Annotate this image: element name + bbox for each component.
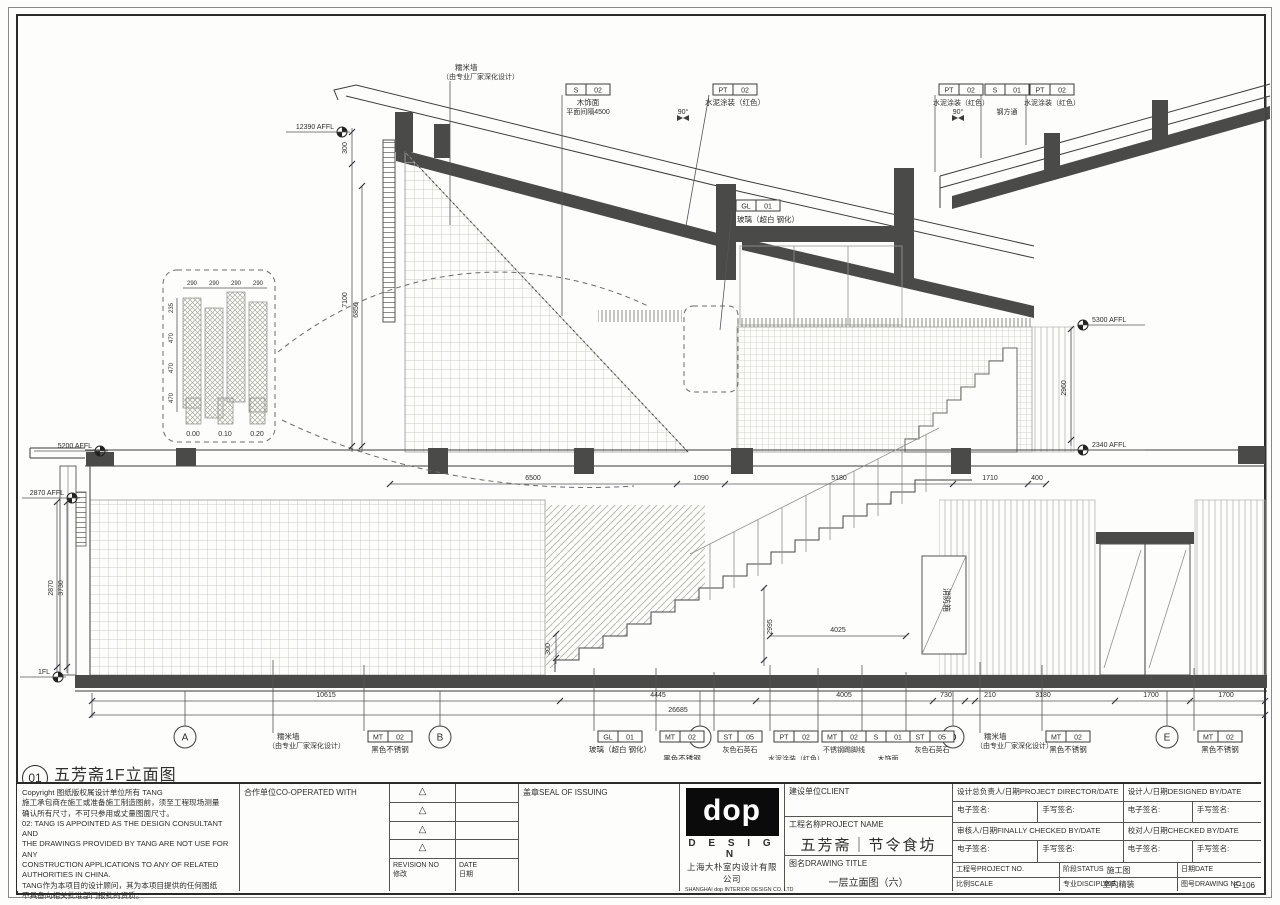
tag-code: PT: [945, 88, 955, 95]
checked-by-label: 校对人/日期CHECKED BY/DATE: [1124, 823, 1261, 841]
note-nuomi-wall-sub: （由专业厂家深化设计）: [268, 741, 345, 750]
dim-label: 2960: [1061, 380, 1068, 396]
tag-num: 02: [741, 88, 749, 95]
dim-label: 2995: [767, 619, 774, 635]
material-tag-pt02-d: PT 02 水泥涂装（红色）: [768, 731, 824, 760]
mid-dimension-chain: 6500 1090 5180 1710 400: [387, 475, 1049, 487]
co-operated-with-cell: 合作单位CO-OPERATED WITH: [240, 784, 390, 891]
tag-code: MT: [373, 735, 384, 742]
tag-code: ST: [724, 735, 734, 742]
dim-label: 4005: [836, 692, 852, 699]
tag-desc: 水泥涂装（红色）: [933, 98, 989, 107]
tag-num: 02: [1058, 88, 1066, 95]
client-cell: 建设单位CLIENT: [785, 784, 952, 817]
dim-label: 1700: [1218, 692, 1234, 699]
level-label: 5300 AFFL: [1092, 317, 1126, 324]
copyright-line: CONSTRUCTION APPLICATIONS TO ANY OF RELA…: [22, 860, 234, 870]
ground-line: [75, 675, 1267, 691]
tag-code: MT: [827, 735, 838, 742]
note-nuomi-wall-sub: （由专业厂家深化设计）: [442, 72, 519, 81]
project-no-cell: 工程号PROJECT NO.: [953, 863, 1059, 878]
note-nuomi-wall-sub: （由专业厂家深化设计）: [976, 741, 1053, 750]
drawing-title-value: 一层立面图（六）: [789, 874, 948, 889]
drawing-title-label: 图名DRAWING TITLE: [789, 859, 867, 868]
angle-label: 90°: [678, 108, 689, 116]
revision-date-cell: [456, 784, 518, 802]
tag-desc: 木饰面: [577, 97, 600, 107]
detail-dim: 290: [253, 281, 264, 287]
project-name-label: 工程名称PROJECT NAME: [789, 820, 884, 829]
tag-code: GL: [603, 735, 612, 742]
dim-label: 300: [545, 643, 552, 655]
revision-date-label-cn: 日期: [459, 870, 515, 879]
grid-bubble-label: A: [182, 733, 189, 744]
project-name-cell: 工程名称PROJECT NAME 五芳斋｜节令食坊: [785, 817, 952, 856]
material-tag-pt02-c: PT 02 水泥涂装（红色）: [1024, 84, 1080, 107]
copyright-line: THE DRAWINGS PROVIDED BY TANG ARE NOT US…: [22, 839, 234, 860]
seal-label: 盖章SEAL OF ISSUING: [523, 788, 608, 797]
detail-dim: 235: [169, 302, 175, 313]
design-wordmark: D E S I G N: [685, 838, 779, 860]
tag-desc: 玻璃（超白 钢化）: [589, 744, 651, 754]
note-nuomi-wall: 糯米墙: [277, 731, 300, 741]
hsign-label: 手写签名:: [1193, 841, 1261, 862]
dim-label: 3730: [58, 580, 65, 596]
company-name-cn: 上海大朴室内设计有限公司: [685, 861, 779, 885]
material-tag-st05: ST 05 灰色石英石: [718, 731, 762, 754]
level-label: 12390 AFFL: [296, 124, 334, 131]
angle-mark-90: 90°: [952, 108, 964, 121]
dim-label: 2870: [48, 580, 55, 596]
material-tag-gl01-b: GL 01 玻璃（超白 钢化）: [589, 731, 651, 754]
tag-num: 01: [764, 204, 772, 211]
fire-hydrant-cabinet: 消防箱: [922, 556, 966, 654]
copyright-line: TANG作为本项目的设计顾问，其为本项目提供的任何图纸: [22, 881, 234, 891]
material-tag-st05-b: ST 05 灰色石英石: [910, 731, 954, 754]
discipline-cell: 专业DISCIPLINE 室内精装: [1060, 878, 1177, 892]
detail-dim: 470: [169, 362, 175, 373]
entrance-door: [1096, 532, 1194, 675]
dim-label: 730: [940, 692, 952, 699]
level-label: 5200 AFFL: [58, 443, 92, 450]
dim-label: 1090: [693, 475, 709, 482]
elevation-drawing: 消防箱 290 290 290 2: [0, 0, 1280, 760]
seal-cell: 盖章SEAL OF ISSUING: [519, 784, 680, 891]
date-cell: 日期DATE: [1178, 863, 1261, 878]
detail-dim: 290: [209, 281, 220, 287]
grid-bubble-label: E: [1164, 733, 1171, 744]
hsign-label: 手写签名:: [1193, 802, 1261, 822]
tag-desc: 黑色不锈钢: [663, 753, 701, 760]
tag-num: 01: [894, 735, 902, 742]
tag-num: 02: [1226, 735, 1234, 742]
tag-num: 05: [938, 735, 946, 742]
tag-desc: 黑色不锈钢: [1201, 744, 1239, 754]
tag-num: 02: [850, 735, 858, 742]
material-tag-mt02: MT 02 黑色不锈钢: [368, 731, 412, 754]
note-nuomi-wall: 糯米墙: [984, 731, 1007, 741]
scale-cell: 比例SCALE: [953, 878, 1059, 892]
company-logo-cell: dop D E S I G N 上海大朴室内设计有限公司 SHANGHAI do…: [680, 784, 785, 891]
dim-total-label: 26685: [668, 707, 688, 714]
material-tag-pt02-b: PT 02 水泥涂装（红色）: [933, 84, 989, 107]
tag-code: MT: [1203, 735, 1214, 742]
dim-label: 1710: [982, 475, 998, 482]
esign-label: 电子签名:: [953, 841, 1038, 862]
company-name-en: SHANGHAI dop INTERIOR DESIGN CO. LTD: [685, 887, 779, 893]
revision-date-header: DATE 日期: [456, 859, 518, 891]
material-tag-s02: S 02 木饰面 平面间隔4500: [566, 84, 610, 116]
designer-signature-block: 设计人/日期DESIGNED BY/DATE 电子签名:手写签名: 校对人/日期…: [1124, 784, 1261, 862]
dim-label: 300: [342, 142, 349, 154]
material-tag-mt02-d: MT 02 黑色不锈钢: [1198, 731, 1242, 754]
tag-code: PT: [780, 735, 790, 742]
revision-date-cell: [456, 803, 518, 821]
dim-label: 4445: [650, 692, 666, 699]
discipline-value: 室内精装: [1060, 879, 1177, 890]
drawing-title-cell: 图名DRAWING TITLE 一层立面图（六）: [785, 856, 952, 891]
angle-mark-90: 90°: [677, 108, 689, 121]
tag-desc: 水泥涂装（红色）: [1024, 98, 1080, 107]
detail-dim: 470: [169, 332, 175, 343]
tag-desc: 黑色不锈钢: [1049, 744, 1087, 754]
revision-date-label: DATE: [459, 861, 515, 870]
revision-mark: △: [390, 840, 456, 858]
title-block: Copyright 图纸版权属设计单位所有 TANG 施工承包商在施工或准备施工…: [17, 782, 1261, 891]
designed-by-label: 设计人/日期DESIGNED BY/DATE: [1124, 784, 1261, 802]
tag-code: MT: [665, 735, 676, 742]
detail-legend: 0.00: [186, 431, 200, 438]
copyright-notes: Copyright 图纸版权属设计单位所有 TANG 施工承包商在施工或准备施工…: [17, 784, 240, 891]
copyright-line: 确认所有尺寸，不可只参用或丈量图面尺寸。: [22, 809, 234, 819]
tag-num: 05: [746, 735, 754, 742]
bottom-dimension-chain: 10615 4445 4005 730 210 3180 1700 1700 2…: [89, 692, 1268, 718]
tag-desc: 钢方通: [997, 107, 1018, 116]
tag-code: PT: [1036, 88, 1046, 95]
level-label: 1FL: [38, 669, 50, 676]
level-label: 2870 AFFL: [30, 490, 64, 497]
tag-desc: 玻璃（超白 钢化）: [737, 214, 799, 224]
drawing-no-cell: 图号DRAWING NO. E-106: [1178, 878, 1261, 892]
dim-label: 4025: [830, 627, 846, 634]
copyright-line: AUTHORITIES IN CHINA.: [22, 870, 234, 880]
angle-label: 90°: [953, 108, 964, 116]
project-name-value: 五芳斋｜节令食坊: [789, 834, 948, 855]
status-value: 施工图: [1060, 865, 1177, 876]
tag-desc: 不锈钢踢脚线: [823, 745, 865, 754]
copyright-line: 施工承包商在施工或准备施工制造图前，须至工程现场测量: [22, 798, 234, 808]
fire-cabinet-label: 消防箱: [942, 588, 952, 612]
tag-num: 02: [802, 735, 810, 742]
dim-label: 400: [1031, 475, 1043, 482]
revision-table: △ △ △ △ REVISION NO 修改 DATE 日期: [390, 784, 519, 891]
material-tag-s01-wood: S 01 木饰面: [866, 731, 910, 760]
tag-code: S: [574, 88, 579, 95]
revision-mark: △: [390, 803, 456, 821]
revision-date-cell: [456, 840, 518, 858]
tag-code: ST: [916, 735, 926, 742]
level-label: 2340 AFFL: [1092, 442, 1126, 449]
tag-desc: 灰色石英石: [915, 745, 950, 754]
tag-code: S: [993, 88, 998, 95]
note-nuomi-wall: 糯米墙: [455, 62, 478, 72]
revision-no-label-cn: 修改: [393, 870, 452, 879]
dim-label: 1700: [1143, 692, 1159, 699]
tag-num: 01: [1013, 88, 1021, 95]
copyright-line: 02: TANG IS APPOINTED AS THE DESIGN CONS…: [22, 819, 234, 840]
tag-code: PT: [719, 88, 729, 95]
tag-code: S: [874, 735, 879, 742]
tag-num: 02: [1074, 735, 1082, 742]
dim-label: 5180: [831, 475, 847, 482]
esign-label: 电子签名:: [1124, 841, 1193, 862]
dim-label: 6500: [525, 475, 541, 482]
project-no-label: 工程号PROJECT NO.: [956, 866, 1024, 873]
detail-dim: 290: [187, 281, 198, 287]
esign-label: 电子签名:: [953, 802, 1038, 822]
tag-num: 02: [688, 735, 696, 742]
dim-label: 210: [984, 692, 996, 699]
material-tag-mt02-c: MT 02 黑色不锈钢: [1046, 731, 1090, 754]
dim-label: 10615: [316, 692, 336, 699]
status-cell: 阶段STATUS 施工图: [1060, 863, 1177, 878]
dim-label: 3180: [1035, 692, 1051, 699]
detail-dim: 470: [169, 392, 175, 403]
detail-legend: 0.20: [250, 431, 264, 438]
tag-desc: 木饰面: [878, 754, 899, 760]
drawing-no-value: E-106: [1234, 881, 1255, 890]
esign-label: 电子签名:: [1124, 802, 1193, 822]
material-tag-pt02: PT 02 水泥涂装（红色）: [705, 84, 765, 107]
tag-num: 02: [396, 735, 404, 742]
title-block-fields: 建设单位CLIENT 工程名称PROJECT NAME 五芳斋｜节令食坊 图名D…: [785, 784, 1261, 891]
tag-code: GL: [741, 204, 750, 211]
detail-dim: 290: [231, 281, 242, 287]
revision-mark: △: [390, 822, 456, 840]
director-label: 设计总负责人/日期PROJECT DIRECTOR/DATE: [953, 784, 1123, 802]
hsign-label: 手写签名:: [1038, 841, 1122, 862]
tag-code: MT: [1051, 735, 1062, 742]
revision-no-header: REVISION NO 修改: [390, 859, 456, 891]
tag-desc: 黑色不锈钢: [371, 744, 409, 754]
date-label: 日期DATE: [1181, 866, 1213, 873]
tag-desc: 灰色石英石: [723, 745, 758, 754]
revision-date-cell: [456, 822, 518, 840]
tag-desc2: 平面间隔4500: [566, 107, 610, 116]
tag-num: 02: [594, 88, 602, 95]
revision-no-label: REVISION NO: [393, 861, 452, 870]
detail-legend: 0.10: [218, 431, 232, 438]
scale-label: 比例SCALE: [956, 881, 993, 888]
dim-label: 6850: [353, 302, 360, 318]
dop-logo: dop: [686, 788, 779, 836]
director-signature-block: 设计总负责人/日期PROJECT DIRECTOR/DATE 电子签名:手写签名…: [953, 784, 1124, 862]
pattern-detail-box: 290 290 290 290 235 470 470 470 0.00 0.1…: [163, 270, 275, 442]
revision-mark: △: [390, 784, 456, 802]
material-tag-s01-steel: S 01 钢方通: [985, 84, 1029, 116]
dim-label: 7100: [342, 292, 349, 308]
tag-desc: 水泥涂装（红色）: [705, 97, 765, 107]
copyright-line: 不具备向相关批准部门报批的资质。: [22, 891, 234, 901]
drawing-sheet: 消防箱 290 290 290 2: [0, 0, 1280, 905]
tag-num: 01: [626, 735, 634, 742]
finally-checked-label: 审核人/日期FINALLY CHECKED BY/DATE: [953, 823, 1123, 841]
client-label: 建设单位CLIENT: [789, 787, 849, 796]
tag-desc: 水泥涂装（红色）: [768, 754, 824, 760]
tag-num: 02: [967, 88, 975, 95]
material-tag-gl01: GL 01 玻璃（超白 钢化）: [736, 200, 799, 224]
co-operated-label: 合作单位CO-OPERATED WITH: [244, 788, 357, 797]
copyright-line: Copyright 图纸版权属设计单位所有 TANG: [22, 788, 234, 798]
hsign-label: 手写签名:: [1038, 802, 1122, 822]
material-tag-mt02-skirt: MT 02 不锈钢踢脚线: [822, 731, 866, 754]
grid-bubble-label: B: [437, 733, 444, 744]
